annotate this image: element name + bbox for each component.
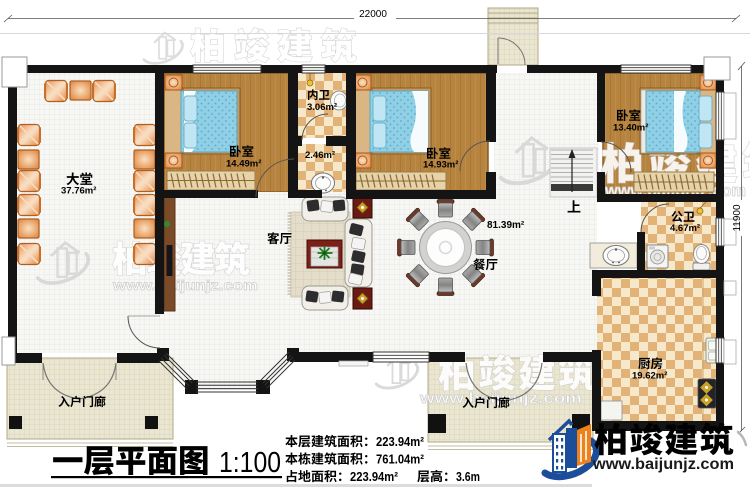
svg-text:2.46m²: 2.46m² <box>305 150 335 161</box>
svg-text:www.baijunjz.com: www.baijunjz.com <box>592 456 734 473</box>
svg-text:223.94m²: 223.94m² <box>376 434 425 449</box>
svg-text:3.06m²: 3.06m² <box>307 102 337 113</box>
svg-text:14.93m²: 14.93m² <box>423 160 458 171</box>
svg-text:19.62m²: 19.62m² <box>632 371 667 382</box>
svg-text:13.40m²: 13.40m² <box>613 123 648 134</box>
svg-text:1:100: 1:100 <box>219 447 281 479</box>
svg-text:www.baijunjz.com: www.baijunjz.com <box>112 277 258 293</box>
svg-text:11900: 11900 <box>732 204 743 232</box>
svg-text:14.49m²: 14.49m² <box>226 159 261 170</box>
svg-text:223.94m²: 223.94m² <box>350 469 399 484</box>
svg-text:4.67m²: 4.67m² <box>670 223 700 234</box>
svg-text:81.39m²: 81.39m² <box>487 220 525 231</box>
svg-text:37.76m²: 37.76m² <box>61 186 96 197</box>
svg-text:22000: 22000 <box>359 9 387 20</box>
svg-text:761.04m²: 761.04m² <box>376 452 425 467</box>
svg-text:3.6m: 3.6m <box>456 469 480 484</box>
